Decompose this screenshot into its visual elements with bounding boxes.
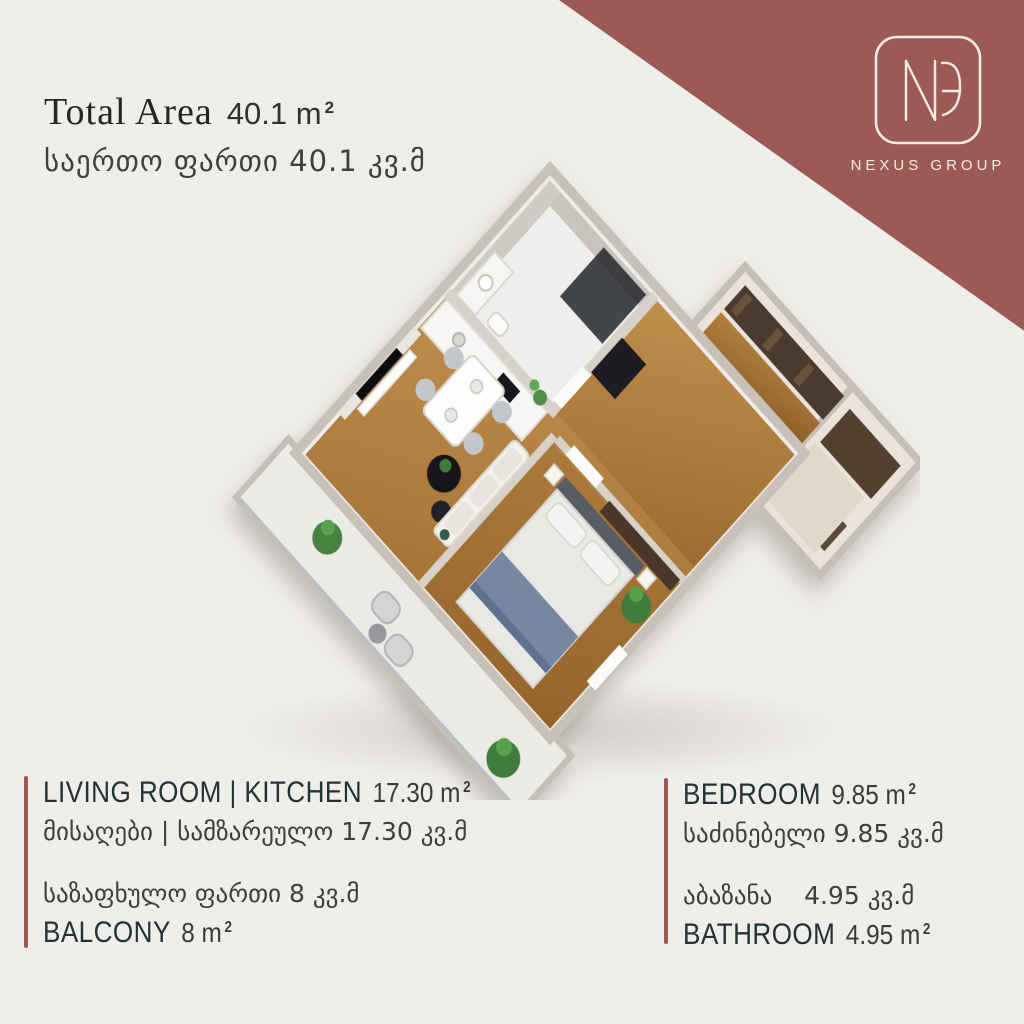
balcony-label: BALCONY (43, 916, 171, 950)
bedroom-value: 9.85 m2 (831, 779, 916, 811)
bathroom-line-en: BATHROOM 4.95 m2 (683, 918, 930, 952)
accent-bar-left (24, 776, 28, 948)
living-kitchen-label: LIVING ROOM | KITCHEN (43, 776, 362, 810)
bedroom-line-en: BEDROOM 9.85 m2 (683, 778, 930, 812)
living-kitchen-line-ka: მისაღები | სამზარეულო 17.30 კვ.მ (43, 817, 534, 846)
total-area-line-ka: საერთო ფართი 40.1 კვ.მ (44, 144, 426, 178)
sup-2: 2 (908, 781, 915, 798)
sup-2: 2 (224, 919, 231, 936)
living-kitchen-line-en: LIVING ROOM | KITCHEN 17.30 m2 (43, 776, 471, 810)
bedroom-bathroom-panel: BEDROOM 9.85 m2 საძინებელი 9.85 კვ.მ აბა… (664, 778, 967, 952)
bathroom-line-ka: აბაზანა 4.95 კვ.მ (683, 881, 967, 910)
bathroom-value: 4.95 m2 (846, 919, 931, 951)
total-area-header: Total Area 40.1 m2 საერთო ფართი 40.1 კვ.… (44, 90, 426, 178)
floorplan-3d-render (140, 140, 920, 800)
bedroom-label: BEDROOM (683, 778, 821, 812)
sup-2: 2 (923, 921, 930, 938)
total-area-value: 40.1 m2 (227, 96, 334, 132)
balcony-value: 8 m2 (181, 917, 232, 949)
company-name: NEXUS GROUP (838, 157, 1018, 174)
accent-bar-right (664, 778, 668, 944)
living-kitchen-value: 17.30 m2 (372, 777, 470, 809)
ng-monogram-icon (873, 34, 983, 146)
nexus-group-logo: NEXUS GROUP (838, 34, 1018, 174)
sup-2: 2 (463, 779, 470, 796)
living-kitchen-balcony-panel: LIVING ROOM | KITCHEN 17.30 m2 მისაღები … (24, 776, 534, 950)
total-area-line-en: Total Area 40.1 m2 (44, 90, 426, 134)
balcony-line-en: BALCONY 8 m2 (43, 916, 471, 950)
sup-2: 2 (325, 98, 334, 117)
bathroom-label: BATHROOM (683, 918, 835, 952)
bedroom-line-ka: საძინებელი 9.85 კვ.მ (683, 819, 967, 848)
balcony-line-ka: საზაფხულო ფართი 8 კვ.მ (43, 879, 534, 908)
poster-canvas: { "colors": { "background": "#f1efeb", "… (0, 0, 1024, 1024)
total-area-label: Total Area (44, 90, 213, 134)
